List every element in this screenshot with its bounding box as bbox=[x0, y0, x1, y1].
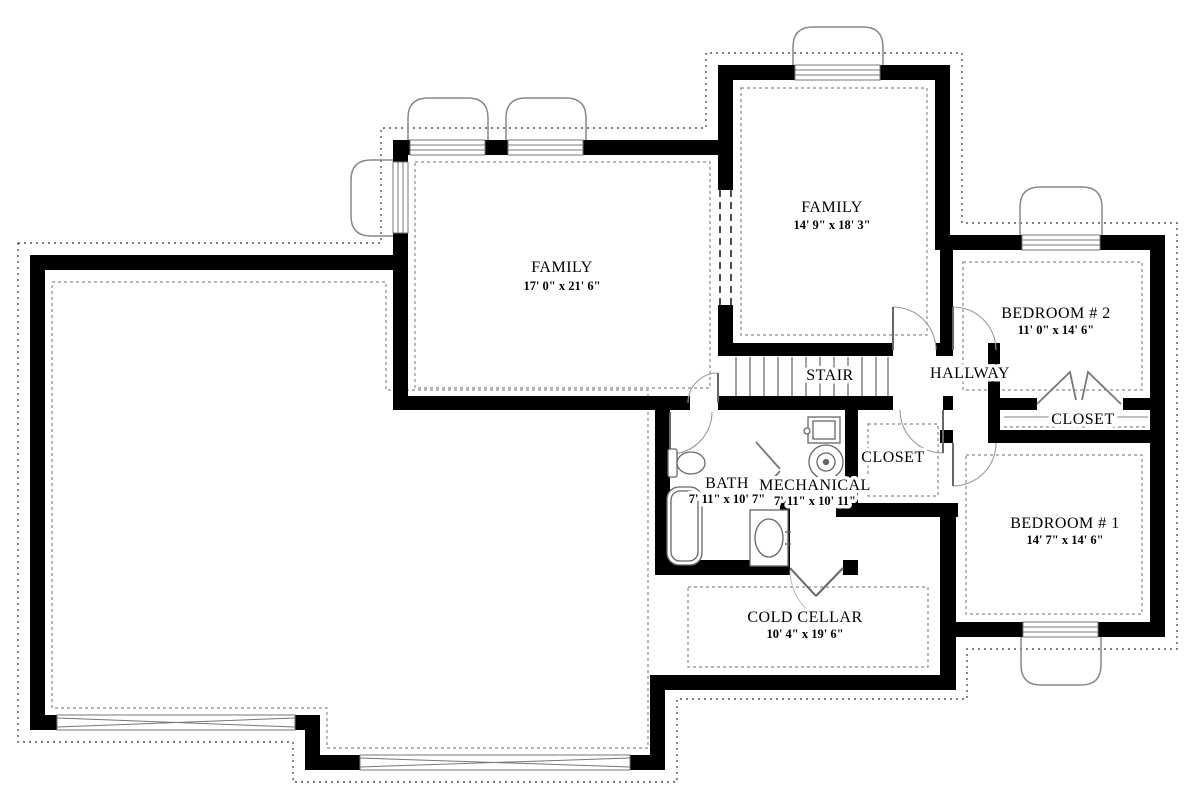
room-dims-family-upper: 14' 9" x 18' 3" bbox=[793, 218, 870, 232]
room-label-bedroom1: BEDROOM # 1 bbox=[1010, 515, 1120, 532]
room-dims-cold-cellar: 10' 4" x 19' 6" bbox=[766, 627, 843, 641]
room-label-family-upper: FAMILY bbox=[801, 199, 863, 216]
room-dims-family-left: 17' 0" x 21' 6" bbox=[523, 279, 600, 293]
toilet-fixture bbox=[668, 449, 705, 477]
window-well bbox=[793, 27, 883, 67]
window bbox=[360, 755, 630, 770]
window bbox=[410, 140, 485, 155]
room-label-family-left: FAMILY bbox=[531, 259, 593, 276]
door-swing bbox=[953, 443, 996, 486]
bifold-door bbox=[1037, 372, 1121, 404]
room-dims-bedroom2: 11' 0" x 14' 6" bbox=[1018, 323, 1094, 337]
door-swing bbox=[900, 410, 943, 453]
room-dims-mechanical: 7' 11" x 10' 11" bbox=[774, 494, 856, 508]
window-well bbox=[1020, 187, 1102, 237]
window bbox=[508, 140, 583, 155]
door-swing bbox=[893, 307, 936, 350]
water-heater-fixture bbox=[809, 445, 843, 479]
window bbox=[1022, 235, 1100, 250]
window-well bbox=[506, 98, 586, 142]
laundry-sink-fixture bbox=[750, 510, 791, 566]
room-label-stair: STAIR bbox=[806, 367, 853, 384]
floor-plan-canvas: FAMILY 17' 0" x 21' 6" FAMILY 14' 9" x 1… bbox=[0, 0, 1200, 800]
unfinished-area-dashed bbox=[52, 282, 648, 748]
room-label-cold-cellar: COLD CELLAR bbox=[747, 609, 862, 626]
window bbox=[795, 65, 880, 80]
window-well bbox=[1021, 635, 1101, 685]
room-label-bath: BATH bbox=[705, 475, 749, 492]
room-label-bedroom2: BEDROOM # 2 bbox=[1001, 305, 1111, 322]
room-label-mechanical: MECHANICAL bbox=[759, 477, 871, 494]
floor-plan-drawing: FAMILY 17' 0" x 21' 6" FAMILY 14' 9" x 1… bbox=[0, 0, 1200, 800]
window bbox=[57, 715, 295, 730]
walls bbox=[30, 65, 1165, 770]
room-label-hallway: HALLWAY bbox=[930, 365, 1010, 382]
cased-opening-dashed bbox=[716, 190, 735, 305]
interior-dashed-lines bbox=[52, 88, 1148, 748]
room-dims-bedroom1: 14' 7" x 14' 6" bbox=[1026, 533, 1103, 547]
door-swing bbox=[670, 412, 712, 454]
window bbox=[393, 162, 408, 233]
furnace-fixture bbox=[804, 417, 840, 443]
room-label-closet-bedroom2: CLOSET bbox=[1051, 411, 1114, 428]
room-label-closet-hall: CLOSET bbox=[861, 449, 924, 466]
window-well bbox=[351, 160, 395, 236]
window bbox=[1023, 622, 1098, 637]
room-dims-bath: 7' 11" x 10' 7" bbox=[689, 492, 765, 506]
window-well bbox=[408, 98, 488, 142]
